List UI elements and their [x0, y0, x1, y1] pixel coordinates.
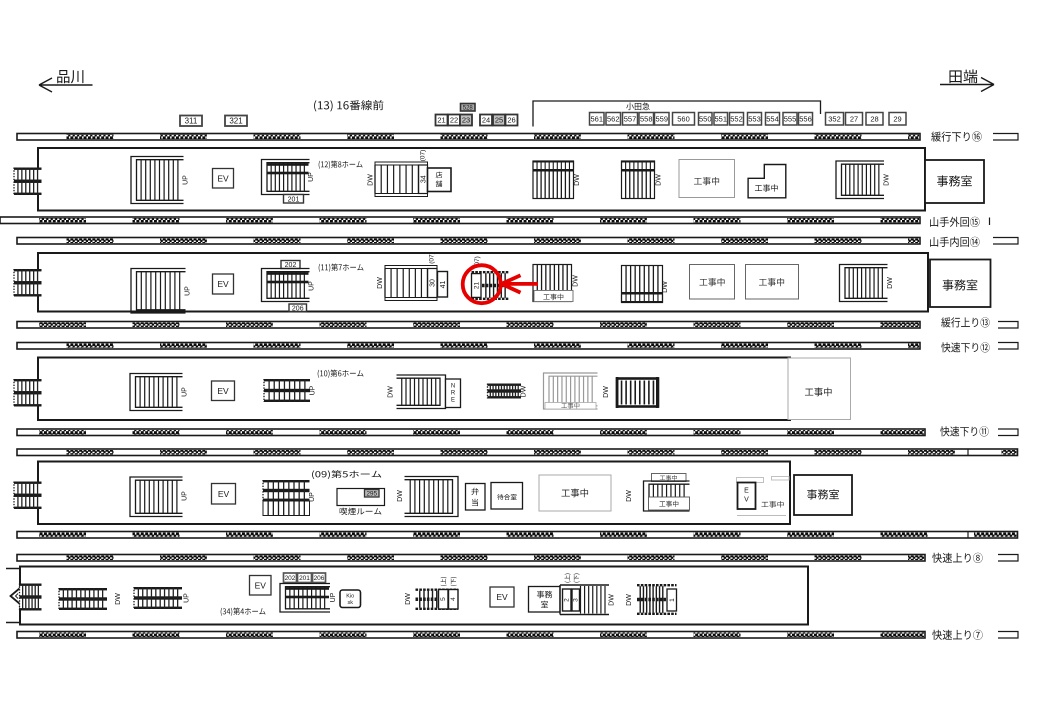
- svg-text:206: 206: [314, 575, 325, 582]
- svg-text:352: 352: [828, 114, 841, 123]
- svg-text:DW: DW: [884, 174, 891, 186]
- svg-text:EV: EV: [255, 580, 267, 590]
- svg-text:550: 550: [699, 114, 712, 123]
- svg-text:UP: UP: [309, 281, 316, 291]
- svg-text:E: E: [451, 398, 455, 404]
- svg-text:201: 201: [299, 575, 310, 582]
- svg-text:557: 557: [624, 114, 637, 123]
- svg-text:1: 1: [669, 598, 676, 602]
- svg-text:21: 21: [437, 116, 445, 125]
- svg-text:22: 22: [450, 116, 458, 125]
- svg-text:559: 559: [655, 114, 668, 123]
- svg-text:UP: UP: [183, 175, 190, 185]
- svg-text:554: 554: [766, 114, 779, 123]
- svg-text:295: 295: [366, 491, 377, 498]
- svg-text:DW: DW: [115, 593, 122, 605]
- svg-text:V: V: [744, 497, 749, 504]
- svg-text:DW: DW: [377, 277, 384, 289]
- svg-text:EV: EV: [217, 173, 229, 183]
- svg-text:24: 24: [482, 116, 490, 125]
- svg-text:23: 23: [462, 116, 470, 125]
- svg-text:E: E: [744, 488, 749, 495]
- svg-text:4: 4: [450, 597, 457, 601]
- svg-text:552: 552: [730, 114, 743, 123]
- svg-text:2: 2: [564, 598, 571, 602]
- svg-text:(07): (07): [429, 252, 436, 264]
- svg-text:28: 28: [870, 114, 878, 123]
- svg-text:R: R: [451, 391, 456, 397]
- svg-text:EV: EV: [217, 386, 229, 396]
- svg-text:206: 206: [292, 305, 304, 312]
- svg-text:311: 311: [185, 117, 198, 126]
- svg-text:DW: DW: [626, 594, 633, 606]
- svg-text:DW: DW: [368, 174, 375, 186]
- svg-text:201: 201: [288, 196, 300, 203]
- svg-text:EV: EV: [217, 279, 229, 289]
- svg-text:N: N: [451, 384, 455, 390]
- svg-text:(07): (07): [420, 150, 427, 162]
- svg-text:27: 27: [850, 114, 858, 123]
- svg-text:556: 556: [799, 114, 812, 123]
- svg-text:21: 21: [473, 282, 480, 290]
- svg-text:DW: DW: [388, 386, 395, 398]
- svg-text:DW: DW: [574, 174, 581, 186]
- svg-text:UP: UP: [185, 286, 192, 296]
- svg-text:UP: UP: [182, 387, 189, 397]
- svg-text:25: 25: [495, 116, 503, 125]
- svg-text:UP: UP: [310, 385, 317, 395]
- svg-text:DW: DW: [573, 275, 580, 287]
- svg-text:DW: DW: [887, 277, 894, 289]
- svg-text:562: 562: [607, 114, 620, 123]
- svg-text:558: 558: [640, 114, 653, 123]
- svg-text:553: 553: [748, 114, 761, 123]
- svg-text:202: 202: [285, 575, 296, 582]
- svg-text:DW: DW: [609, 594, 616, 606]
- svg-text:DW: DW: [656, 174, 663, 186]
- svg-text:26: 26: [507, 116, 515, 125]
- svg-text:34: 34: [420, 175, 427, 183]
- svg-text:551: 551: [714, 114, 727, 123]
- svg-text:561: 561: [590, 114, 603, 123]
- svg-text:560: 560: [677, 114, 690, 123]
- svg-text:555: 555: [784, 114, 797, 123]
- svg-text:30: 30: [430, 279, 437, 287]
- svg-text:DW: DW: [521, 385, 528, 397]
- svg-text:DW: DW: [397, 490, 404, 502]
- svg-text:DW: DW: [603, 386, 610, 398]
- svg-text:UP: UP: [308, 172, 315, 182]
- svg-text:Kio: Kio: [346, 594, 354, 600]
- svg-text:5: 5: [440, 597, 447, 601]
- svg-text:29: 29: [893, 114, 901, 123]
- svg-text:DW: DW: [626, 490, 633, 502]
- svg-text:DW: DW: [662, 281, 669, 293]
- svg-text:UP: UP: [330, 592, 337, 602]
- svg-text:3: 3: [573, 598, 580, 602]
- svg-text:321: 321: [229, 117, 243, 126]
- svg-text:sk: sk: [347, 600, 353, 606]
- svg-text:41: 41: [440, 281, 447, 289]
- svg-text:UP: UP: [182, 491, 189, 501]
- svg-text:528: 528: [463, 105, 474, 111]
- svg-text:EV: EV: [496, 592, 508, 602]
- svg-text:EV: EV: [218, 489, 230, 499]
- svg-text:DW: DW: [405, 593, 412, 605]
- svg-text:UP: UP: [184, 593, 191, 603]
- svg-text:UP: UP: [309, 492, 316, 502]
